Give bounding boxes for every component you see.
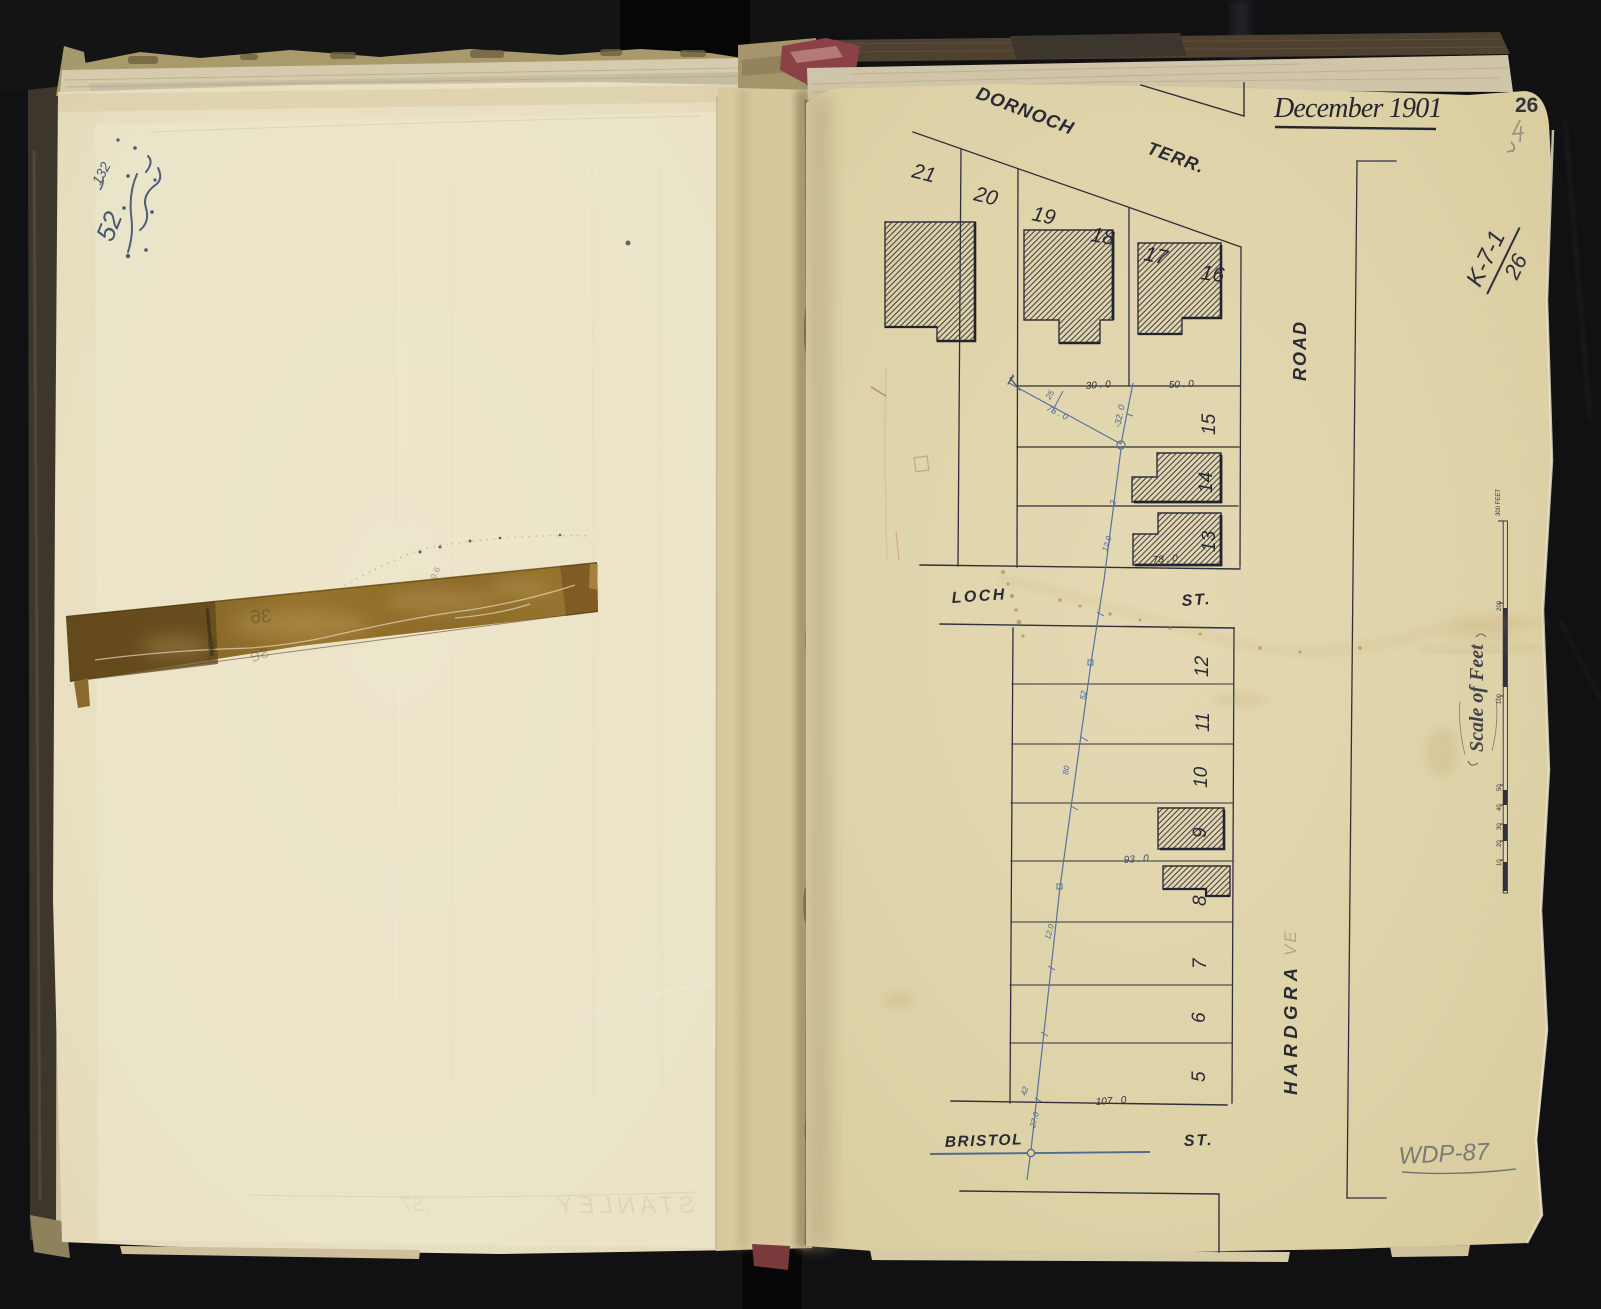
- svg-text:12: 12: [1192, 655, 1213, 677]
- svg-text:ST.: ST.: [1181, 591, 1212, 610]
- svg-text:11: 11: [1193, 712, 1214, 732]
- svg-text:10: 10: [1191, 766, 1212, 788]
- svg-text:9: 9: [1190, 827, 1211, 838]
- svg-text:15: 15: [1199, 413, 1220, 435]
- svg-text:HARDGRA: HARDGRA: [1280, 963, 1301, 1095]
- svg-text:20: 20: [1497, 840, 1503, 847]
- svg-text:6: 6: [1189, 1012, 1210, 1023]
- svg-text:36: 36: [250, 606, 273, 628]
- svg-text:BRISTOL: BRISTOL: [945, 1131, 1024, 1151]
- svg-text:10: 10: [1497, 859, 1503, 866]
- svg-text:WDP-87: WDP-87: [1398, 1138, 1492, 1170]
- svg-text:18: 18: [1089, 223, 1116, 250]
- svg-text:ROAD: ROAD: [1290, 320, 1310, 381]
- svg-text:200: 200: [1497, 600, 1503, 611]
- svg-text:107 . 0: 107 . 0: [1095, 1095, 1127, 1108]
- svg-text:7: 7: [1190, 957, 1211, 969]
- svg-text:50 . 0: 50 . 0: [1169, 379, 1195, 391]
- svg-text:December 1901: December 1901: [1273, 93, 1442, 124]
- svg-text:400: 400: [206, 637, 218, 653]
- svg-text:100: 100: [1497, 693, 1503, 704]
- svg-text:93 . 0: 93 . 0: [1123, 853, 1149, 866]
- svg-text:26: 26: [1515, 94, 1538, 117]
- svg-text:Scale of Feet: Scale of Feet: [1466, 643, 1488, 752]
- svg-text:30 . 0: 30 . 0: [1085, 379, 1111, 392]
- svg-text:STANLEY: STANLEY: [552, 1192, 695, 1219]
- svg-text:VE: VE: [1281, 929, 1300, 956]
- svg-text:40: 40: [1497, 804, 1503, 811]
- svg-text:13: 13: [1199, 530, 1220, 552]
- svg-text:5: 5: [1189, 1071, 1210, 1082]
- svg-text:14: 14: [1196, 472, 1217, 493]
- svg-text:30: 30: [1497, 823, 1503, 830]
- svg-text:,S7: ,S7: [400, 1195, 430, 1216]
- svg-text:50: 50: [1497, 784, 1503, 791]
- svg-text:78 . 0: 78 . 0: [1152, 553, 1178, 566]
- svg-text:16: 16: [1199, 261, 1226, 287]
- svg-text:300 FEET: 300 FEET: [1496, 489, 1502, 516]
- svg-text:ST.: ST.: [1184, 1132, 1214, 1150]
- svg-text:8: 8: [1190, 895, 1211, 906]
